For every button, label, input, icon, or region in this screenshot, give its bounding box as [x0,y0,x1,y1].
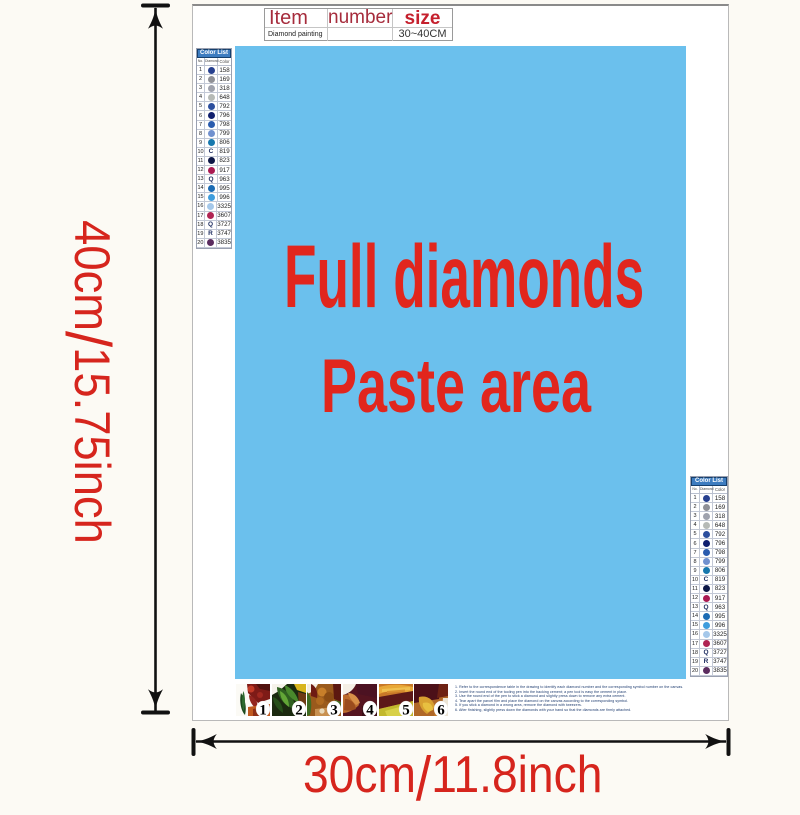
svg-text:6: 6 [437,703,445,716]
svg-text:2: 2 [295,703,303,716]
svg-text:1: 1 [259,703,267,716]
svg-text:3: 3 [330,703,338,716]
svg-text:4: 4 [366,703,374,716]
svg-text:5: 5 [402,703,410,716]
